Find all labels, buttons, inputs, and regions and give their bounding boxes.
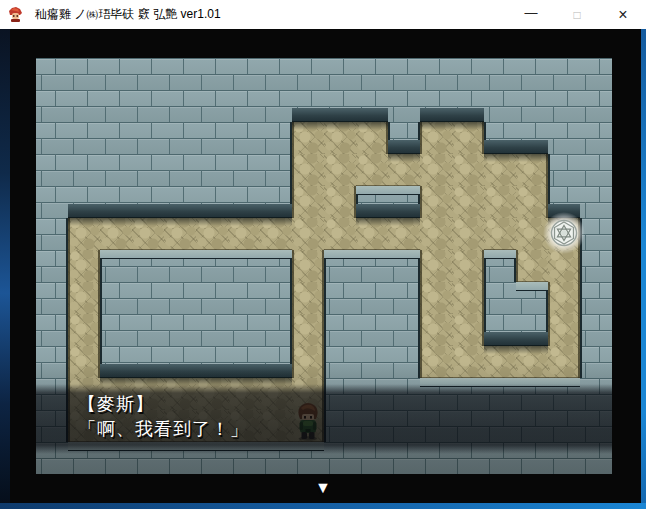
- wall-tile: [580, 90, 612, 122]
- path-tile: [452, 154, 484, 186]
- wall-tile: [356, 314, 388, 346]
- window-title: 秈癟雞 ノ㈱珸毕砆 窽 弘艶 ver1.01: [35, 0, 221, 29]
- path-tile: [420, 282, 452, 314]
- wall-tile: [196, 154, 228, 186]
- wall-tile: [36, 346, 68, 378]
- wall-tile: [324, 90, 356, 122]
- path-tile: [68, 314, 100, 346]
- wall-tile: [228, 346, 260, 378]
- wall-tile: [260, 186, 292, 218]
- wall-tile: [516, 90, 548, 122]
- window-right-glow: [641, 29, 646, 509]
- wall-tile: [260, 314, 292, 346]
- path-tile: [484, 346, 516, 378]
- wall-tile: [164, 122, 196, 154]
- path-tile: [548, 314, 580, 346]
- path-tile: [388, 154, 420, 186]
- wall-tile: [484, 250, 516, 282]
- wall-tile: [36, 122, 68, 154]
- wall-tile: [164, 314, 196, 346]
- wall-tile: [228, 154, 260, 186]
- wall-tile: [164, 186, 196, 218]
- wall-tile: [36, 90, 68, 122]
- wall-tile: [228, 186, 260, 218]
- wall-tile: [388, 250, 420, 282]
- path-tile: [452, 250, 484, 282]
- wall-tile: [324, 250, 356, 282]
- path-tile: [388, 218, 420, 250]
- dialog-text: 「啊、我看到了！」: [78, 417, 249, 442]
- path-tile: [516, 154, 548, 186]
- path-tile: [356, 218, 388, 250]
- wall-tile: [196, 346, 228, 378]
- wall-tile: [548, 122, 580, 154]
- wall-tile: [356, 250, 388, 282]
- wall-tile: [484, 58, 516, 90]
- window-left-glow: [0, 29, 10, 509]
- path-tile: [420, 346, 452, 378]
- path-tile: [420, 154, 452, 186]
- wall-tile: [516, 282, 548, 314]
- wall-tile: [100, 90, 132, 122]
- path-tile: [68, 250, 100, 282]
- wall-tile: [196, 90, 228, 122]
- wall-tile: [228, 90, 260, 122]
- app-window: { "window": { "title": "秈癟雞 ノ㈱珸毕砆 窽 弘艶 v…: [0, 0, 646, 509]
- wall-tile: [132, 90, 164, 122]
- path-tile: [68, 282, 100, 314]
- wall-tile: [420, 58, 452, 90]
- path-tile: [292, 154, 324, 186]
- wall-tile: [228, 122, 260, 154]
- wall-tile: [580, 282, 612, 314]
- path-tile: [452, 122, 484, 154]
- wall-tile: [100, 186, 132, 218]
- path-tile: [292, 314, 324, 346]
- wall-tile: [452, 58, 484, 90]
- wall-tile: [324, 346, 356, 378]
- dialog-box: 【麥斯】 「啊、我看到了！」: [36, 384, 612, 454]
- wall-tile: [356, 282, 388, 314]
- wall-tile: [100, 346, 132, 378]
- wall-tile: [36, 250, 68, 282]
- wall-tile: [356, 186, 388, 218]
- wall-tile: [132, 186, 164, 218]
- path-tile: [516, 346, 548, 378]
- path-tile: [452, 346, 484, 378]
- path-tile: [292, 186, 324, 218]
- wall-tile: [516, 122, 548, 154]
- wall-tile: [68, 90, 100, 122]
- path-tile: [196, 218, 228, 250]
- path-tile: [292, 282, 324, 314]
- maximize-button[interactable]: □: [554, 0, 600, 29]
- close-button[interactable]: ×: [600, 0, 646, 29]
- wall-tile: [228, 282, 260, 314]
- wall-tile: [196, 250, 228, 282]
- path-tile: [452, 218, 484, 250]
- path-tile: [420, 314, 452, 346]
- path-tile: [68, 218, 100, 250]
- path-tile: [324, 154, 356, 186]
- wall-tile: [324, 314, 356, 346]
- path-tile: [292, 346, 324, 378]
- wall-tile: [68, 58, 100, 90]
- wall-tile: [68, 122, 100, 154]
- game-viewport[interactable]: 【麥斯】 「啊、我看到了！」: [36, 58, 612, 474]
- wall-tile: [132, 154, 164, 186]
- wall-tile: [356, 90, 388, 122]
- wall-tile: [548, 58, 580, 90]
- continue-arrow-icon: ▼: [308, 480, 338, 496]
- wall-tile: [36, 58, 68, 90]
- path-tile: [292, 250, 324, 282]
- wall-tile: [260, 154, 292, 186]
- path-tile: [420, 122, 452, 154]
- path-tile: [228, 218, 260, 250]
- wall-tile: [388, 90, 420, 122]
- wall-tile: [132, 250, 164, 282]
- wall-tile: [164, 346, 196, 378]
- wall-tile: [260, 58, 292, 90]
- wall-tile: [356, 58, 388, 90]
- path-tile: [420, 250, 452, 282]
- wall-tile: [132, 122, 164, 154]
- path-tile: [452, 186, 484, 218]
- window-titlebar[interactable]: 秈癟雞 ノ㈱珸毕砆 窽 弘艶 ver1.01 — □ ×: [0, 0, 646, 29]
- path-tile: [100, 218, 132, 250]
- wall-tile: [132, 314, 164, 346]
- wall-tile: [164, 58, 196, 90]
- app-icon: [7, 6, 24, 23]
- wall-tile: [324, 58, 356, 90]
- wall-tile: [580, 122, 612, 154]
- wall-tile: [260, 346, 292, 378]
- dialog-speaker-name: 【麥斯】: [78, 392, 249, 417]
- wall-tile: [196, 314, 228, 346]
- wall-tile: [36, 154, 68, 186]
- path-tile: [452, 282, 484, 314]
- wall-tile: [292, 90, 324, 122]
- path-tile: [452, 314, 484, 346]
- wall-tile: [196, 282, 228, 314]
- wall-tile: [164, 282, 196, 314]
- wall-tile: [260, 122, 292, 154]
- wall-tile: [100, 314, 132, 346]
- wall-tile: [100, 282, 132, 314]
- wall-tile: [68, 154, 100, 186]
- path-tile: [420, 186, 452, 218]
- wall-tile: [420, 90, 452, 122]
- wall-tile: [100, 154, 132, 186]
- wall-tile: [196, 186, 228, 218]
- wall-tile: [388, 282, 420, 314]
- wall-tile: [228, 58, 260, 90]
- wall-tile: [36, 186, 68, 218]
- path-tile: [484, 186, 516, 218]
- wall-tile: [132, 282, 164, 314]
- wall-tile: [100, 250, 132, 282]
- gem-icon: [542, 211, 586, 255]
- path-tile: [484, 154, 516, 186]
- wall-tile: [260, 90, 292, 122]
- wall-tile: [324, 282, 356, 314]
- wall-tile: [580, 154, 612, 186]
- wall-tile: [100, 122, 132, 154]
- wall-tile: [548, 154, 580, 186]
- wall-tile: [196, 58, 228, 90]
- wall-tile: [196, 122, 228, 154]
- wall-tile: [36, 314, 68, 346]
- wall-tile: [484, 122, 516, 154]
- path-tile: [324, 186, 356, 218]
- path-tile: [356, 154, 388, 186]
- wall-tile: [484, 314, 516, 346]
- wall-tile: [292, 58, 324, 90]
- wall-tile: [548, 90, 580, 122]
- wall-tile: [484, 282, 516, 314]
- wall-tile: [580, 58, 612, 90]
- path-tile: [260, 218, 292, 250]
- wall-tile: [228, 250, 260, 282]
- path-tile: [548, 282, 580, 314]
- wall-tile: [452, 90, 484, 122]
- path-tile: [164, 218, 196, 250]
- wall-tile: [260, 250, 292, 282]
- path-tile: [548, 346, 580, 378]
- wall-tile: [132, 58, 164, 90]
- wall-tile: [260, 282, 292, 314]
- wall-tile: [580, 346, 612, 378]
- path-tile: [484, 218, 516, 250]
- wall-tile: [36, 218, 68, 250]
- wall-tile: [516, 58, 548, 90]
- wall-tile: [164, 154, 196, 186]
- wall-tile: [580, 314, 612, 346]
- wall-tile: [36, 282, 68, 314]
- wall-tile: [228, 314, 260, 346]
- path-tile: [68, 346, 100, 378]
- wall-tile: [356, 346, 388, 378]
- path-tile: [420, 218, 452, 250]
- wall-tile: [484, 90, 516, 122]
- wall-tile: [132, 346, 164, 378]
- path-tile: [132, 218, 164, 250]
- wall-tile: [388, 58, 420, 90]
- path-tile: [324, 218, 356, 250]
- wall-tile: [164, 90, 196, 122]
- wall-tile: [516, 314, 548, 346]
- wall-tile: [68, 186, 100, 218]
- path-tile: [292, 122, 324, 154]
- wall-tile: [388, 186, 420, 218]
- wall-tile: [164, 250, 196, 282]
- window-bottom-glow: [0, 503, 646, 509]
- wall-tile: [388, 122, 420, 154]
- wall-tile: [388, 314, 420, 346]
- path-tile: [356, 122, 388, 154]
- wall-tile: [388, 346, 420, 378]
- path-tile: [324, 122, 356, 154]
- wall-tile: [100, 58, 132, 90]
- minimize-button[interactable]: —: [508, 0, 554, 29]
- path-tile: [292, 218, 324, 250]
